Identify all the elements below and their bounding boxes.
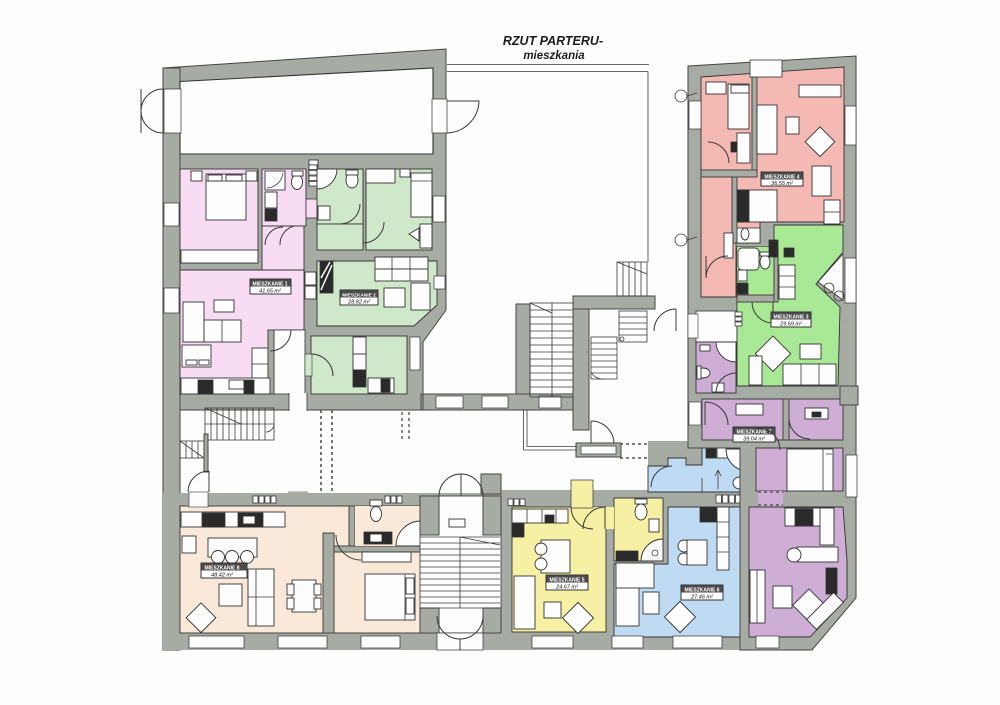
svg-text:29.69 m²: 29.69 m² [779, 322, 802, 328]
svg-text:MIESZKANIE 4: MIESZKANIE 4 [764, 175, 799, 181]
svg-text:28.82 m²: 28.82 m² [347, 300, 370, 306]
svg-text:36.55 m²: 36.55 m² [771, 181, 793, 187]
svg-text:41.65 m²: 41.65 m² [259, 289, 281, 295]
svg-text:24.67 m²: 24.67 m² [555, 585, 578, 591]
svg-text:RZUT PARTERU-: RZUT PARTERU- [503, 34, 603, 48]
svg-text:MIESZKANIE 7: MIESZKANIE 7 [736, 430, 771, 436]
svg-text:MIESZKANIE 3: MIESZKANIE 3 [773, 315, 808, 321]
svg-text:27.46 m²: 27.46 m² [690, 595, 713, 601]
svg-text:MIESZKANIE 2: MIESZKANIE 2 [342, 293, 376, 299]
svg-text:48.42 m²: 48.42 m² [211, 573, 233, 579]
svg-text:MIESZKANIE 5: MIESZKANIE 5 [549, 578, 584, 584]
svg-text:39.04 m²: 39.04 m² [743, 437, 765, 443]
svg-text:MIESZKANIE 8: MIESZKANIE 8 [204, 566, 239, 572]
svg-text:MIESZKANIE 6: MIESZKANIE 6 [684, 588, 719, 594]
svg-text:mieszkania: mieszkania [523, 50, 585, 62]
svg-text:MIESZKANIE 1: MIESZKANIE 1 [252, 282, 287, 288]
